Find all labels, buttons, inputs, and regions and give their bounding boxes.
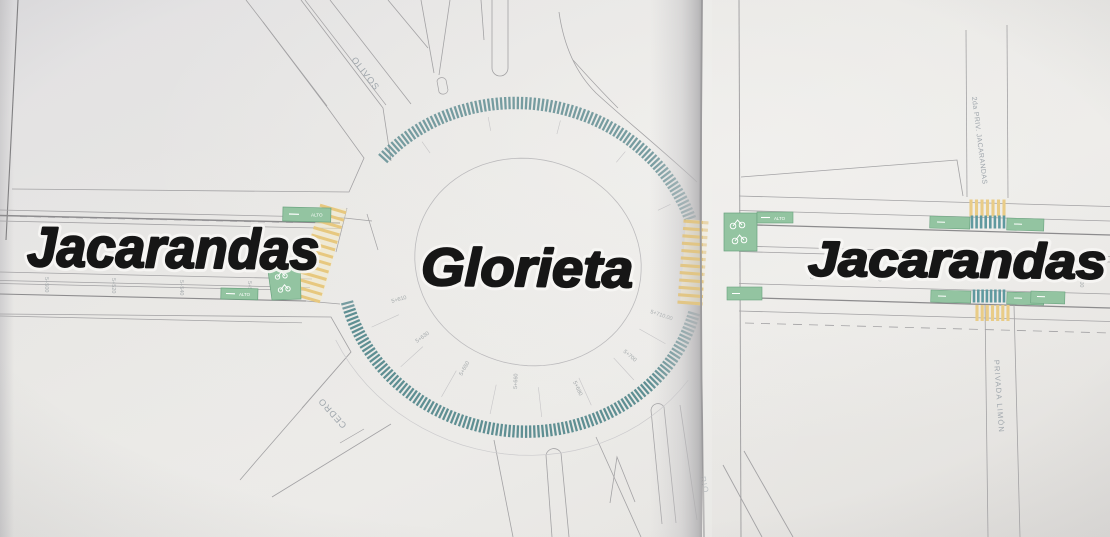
svg-text:5+520: 5+520 [110, 278, 116, 293]
svg-text:Glorieta: Glorieta [421, 238, 634, 299]
svg-text:Jacarandas: Jacarandas [27, 215, 320, 281]
svg-text:Jacarandas: Jacarandas [808, 233, 1107, 290]
svg-text:5+540: 5+540 [178, 280, 184, 295]
svg-text:5+660: 5+660 [513, 373, 520, 389]
svg-text:ALTO: ALTO [774, 216, 786, 221]
svg-text:5+500: 5+500 [43, 277, 49, 292]
svg-text:ALTO: ALTO [311, 213, 323, 218]
svg-text:ALTO: ALTO [239, 292, 251, 297]
